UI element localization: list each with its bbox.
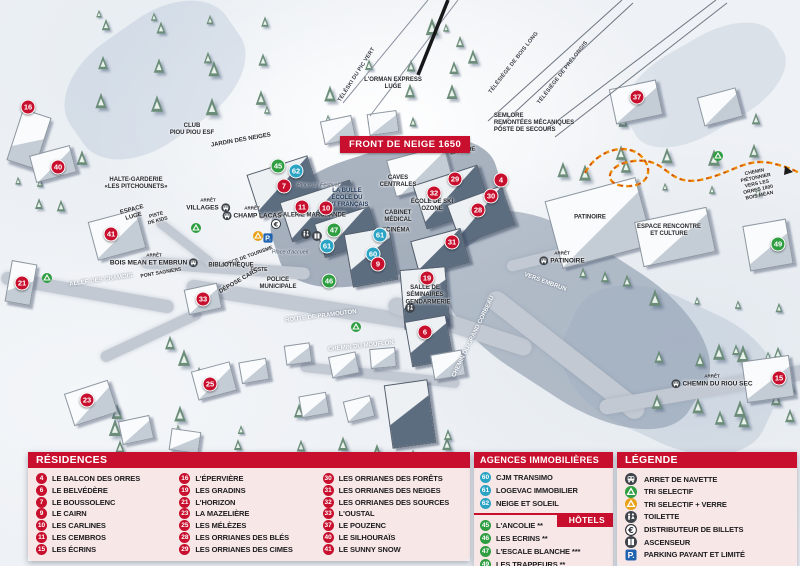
bus-stop-name: PATINOIRE: [550, 257, 584, 264]
map-marker-16: 16: [21, 100, 36, 115]
residence-number: 9: [36, 508, 47, 519]
tree: [785, 409, 795, 423]
agences-header: AGENCES IMMOBILIÈRES: [474, 452, 613, 468]
agence-item: 60CJM TRANSIMO: [480, 472, 608, 483]
map-label: CLUB PIOU PIOU ESF: [170, 123, 214, 137]
tree: [206, 98, 219, 115]
map-marker-31: 31: [445, 235, 460, 250]
tree: [709, 185, 715, 194]
map-marker-25: 25: [203, 377, 218, 392]
bus-stop-name: CHAMP LACAS: [234, 212, 282, 219]
tree: [234, 439, 242, 450]
residence-label: LE CAIRN: [52, 509, 87, 518]
recycle-green-icon: [625, 486, 637, 498]
map-label: CINÉMA: [386, 227, 410, 234]
hotel-number: 49: [480, 559, 491, 566]
residence-label: LES ORRIANES DES CIMES: [195, 545, 292, 554]
tree: [616, 145, 627, 160]
lift-icon: [312, 231, 322, 241]
residences-list: 4LE BALCON DES ORRES6LE BELVÉDÈRE7LE BOU…: [28, 468, 470, 561]
tree: [297, 440, 306, 452]
residence-item: 31LES ORRIANES DES NEIGES: [323, 485, 466, 496]
tree: [695, 353, 705, 367]
map-label: ÉCOLE DE SKI OZONE: [411, 199, 453, 213]
legende-label: TRI SELECTIF: [644, 487, 693, 496]
recycle-yellow-icon: [253, 231, 263, 241]
map-label: GALERIE MARCHANDE: [278, 212, 346, 219]
map-marker-41: 41: [104, 227, 119, 242]
recycle-green-icon: [713, 151, 723, 161]
residence-label: L'ÉPERVIÈRE: [195, 474, 243, 483]
legende-label: ASCENSEUR: [644, 538, 690, 547]
map-marker-61: 61: [320, 239, 335, 254]
bus-icon: [223, 211, 232, 220]
residence-label: LES ORRIANES DES FORÊTS: [339, 474, 443, 483]
tree: [443, 23, 449, 31]
map-label: ESPACE RENCONTRE ET CULTURE: [637, 224, 701, 238]
tree: [409, 117, 416, 127]
residence-item: 40LE SILHOURAÏS: [323, 532, 466, 543]
tree: [77, 150, 88, 165]
tree: [264, 105, 270, 113]
map-marker-47: 47: [327, 223, 342, 238]
recycle-yellow-icon: [625, 498, 637, 510]
tree: [735, 300, 741, 309]
residence-label: LES ORRIANES DES BLÉS: [195, 533, 289, 542]
bus-icon: [539, 256, 548, 265]
residence-item: 10LES CARLINES: [36, 520, 179, 531]
residences-panel: RÉSIDENCES 4LE BALCON DES ORRES6LE BELVÉ…: [28, 452, 470, 561]
bus-stop-name: CHEMIN DU RIOU SEC: [682, 380, 752, 387]
map-marker-7: 7: [277, 179, 292, 194]
tree: [102, 19, 110, 30]
building: [742, 219, 793, 272]
tree: [95, 93, 106, 109]
agences-panel: AGENCES IMMOBILIÈRES 60CJM TRANSIMO61LOG…: [474, 452, 613, 566]
legende-panel: LÉGENDE ARRET DE NAVETTETRI SELECTIFTRI …: [617, 452, 797, 566]
tree: [15, 177, 21, 185]
tree: [178, 349, 190, 366]
map-label: POLICE MUNICIPALE: [260, 277, 297, 291]
residence-label: LES ÉCRINS: [52, 545, 96, 554]
map-label: TÉLÉSIÈGE DE PRÉLONGIS: [536, 40, 589, 106]
tree: [468, 49, 478, 63]
tree: [338, 436, 348, 450]
legende-item: P.PARKING PAYANT ET LIMITÉ: [625, 549, 791, 561]
bus-icon: [189, 258, 198, 267]
tree: [775, 303, 782, 313]
residence-item: 7LE BOUSSOLENC: [36, 497, 179, 508]
hotels-header: HÔTELS: [557, 513, 613, 527]
tree: [557, 162, 568, 177]
residence-item: 41LE SUNNY SNOW: [323, 544, 466, 555]
bus-stop-chemin-du-riou-sec: ARRÊTCHEMIN DU RIOU SEC: [671, 374, 752, 388]
map-marker-46: 46: [322, 274, 337, 289]
map-marker-23: 23: [80, 393, 95, 408]
tree: [57, 200, 66, 212]
residence-number: 6: [36, 485, 47, 496]
map-marker-10: 10: [319, 201, 334, 216]
building: [169, 428, 202, 454]
hotel-label: L'ANCOLIE **: [496, 521, 543, 530]
tree: [98, 56, 108, 70]
residence-item: 29LES ORRIANES DES CIMES: [179, 544, 322, 555]
bus-stop-row: CHEMIN DU RIOU SEC: [671, 379, 752, 388]
residence-number: 37: [323, 520, 334, 531]
parking-icon: P.: [625, 549, 637, 561]
map-label: HALTE-GARDERIE «LES PITCHOUNETS»: [104, 177, 167, 191]
legende-item: TRI SELECTIF + VERRE: [625, 498, 791, 510]
map-label: VERS EMBRUN: [523, 272, 567, 294]
building: [238, 358, 269, 385]
tree: [623, 274, 632, 286]
residence-label: LE POUZENC: [339, 521, 386, 530]
legende-item: TRI SELECTIF: [625, 486, 791, 498]
tree: [447, 84, 458, 99]
map-label: BIBLIOTHÈQUE: [208, 262, 253, 269]
residence-item: 37LE POUZENC: [323, 520, 466, 531]
map-marker-11: 11: [295, 200, 310, 215]
residence-label: LES GRADINS: [195, 486, 245, 495]
bus-stop-patinoire: ARRÊTPATINOIRE: [539, 251, 584, 265]
map-label: PATINOIRE: [574, 214, 606, 221]
wc-icon: [405, 303, 415, 313]
hotel-item: 46LES ECRINS **: [480, 533, 608, 544]
hotel-number: 47: [480, 546, 491, 557]
residences-header: RÉSIDENCES: [28, 452, 470, 468]
agences-list: 60CJM TRANSIMO61LOGEVAC IMMOBILIER62NEIG…: [480, 472, 608, 509]
agence-number: 60: [480, 472, 491, 483]
legende-label: TOILETTE: [644, 512, 679, 521]
tree: [715, 410, 725, 424]
legende-label: PARKING PAYANT ET LIMITÉ: [644, 550, 745, 559]
tree: [258, 53, 267, 66]
residence-label: LE BALCON DES ORRES: [52, 474, 140, 483]
bus-stop-name: VILLAGES: [186, 204, 219, 211]
residence-label: LA MAZELIÈRE: [195, 509, 249, 518]
tree: [652, 394, 663, 409]
residence-item: 23LA MAZELIÈRE: [179, 508, 322, 519]
map-label: CAVES CENTRALES: [380, 175, 417, 189]
tree: [238, 425, 245, 434]
map-marker-49: 49: [771, 237, 786, 252]
tree: [449, 61, 458, 74]
residence-number: 21: [179, 497, 190, 508]
bus-icon: [625, 473, 637, 485]
residence-label: LE SILHOURAÏS: [339, 533, 396, 542]
residence-label: L'OUSTAL: [339, 509, 375, 518]
residence-number: 40: [323, 532, 334, 543]
bus-stop-row: PATINOIRE: [539, 256, 584, 265]
residence-item: 9LE CAIRN: [36, 508, 179, 519]
residences-column-2: 16L'ÉPERVIÈRE19LES GRADINS21L'HORIZON23L…: [179, 473, 322, 555]
building: [343, 395, 375, 423]
map-marker-6: 6: [418, 325, 433, 340]
agence-item: 61LOGEVAC IMMOBILIER: [480, 485, 608, 496]
legende-item: €DISTRIBUTEUR DE BILLETS: [625, 524, 791, 536]
wc-icon: [301, 229, 311, 239]
residence-number: 10: [36, 520, 47, 531]
residence-number: 28: [179, 532, 190, 543]
bus-stop-row: BOIS MEAN ET EMBRUN: [110, 258, 198, 267]
residence-item: 19LES GRADINS: [179, 485, 322, 496]
map-marker-28: 28: [471, 203, 486, 218]
map-label: Place du Festival: [297, 183, 339, 190]
residence-number: 11: [36, 532, 47, 543]
residence-number: 15: [36, 544, 47, 555]
bus-stop-name: BOIS MEAN ET EMBRUN: [110, 259, 187, 266]
map-label: SEMLORE REMONTÉES MÉCANIQUES POSTE DE SE…: [494, 113, 574, 135]
map-marker-61: 61: [373, 228, 388, 243]
tree: [749, 144, 759, 158]
svg-text:€: €: [273, 220, 279, 228]
legende-header: LÉGENDE: [617, 452, 797, 468]
legende-item: ARRET DE NAVETTE: [625, 473, 791, 485]
legende-item: ASCENSEUR: [625, 536, 791, 548]
tree: [157, 21, 166, 33]
tree: [256, 90, 267, 105]
tree: [713, 343, 725, 360]
tree: [738, 412, 749, 427]
building: [298, 392, 329, 419]
euro-icon: €: [271, 219, 281, 229]
residence-label: LE SUNNY SNOW: [339, 545, 401, 554]
map-label: Place d'accueil: [272, 250, 309, 257]
map-marker-21: 21: [15, 276, 30, 291]
map-label: TÉLÉSIÈGE DE BOIS LONG: [488, 31, 540, 96]
tree: [621, 158, 631, 172]
tree: [662, 183, 668, 191]
agence-number: 61: [480, 485, 491, 496]
recycle-green-icon: [191, 223, 201, 233]
residences-column-3: 30LES ORRIANES DES FORÊTS31LES ORRIANES …: [323, 473, 466, 555]
residence-number: 29: [179, 544, 190, 555]
tree: [601, 271, 609, 282]
map-label: ESPACE LUGE: [119, 204, 146, 224]
residence-item: 25LES MÉLÈZES: [179, 520, 322, 531]
residence-number: 4: [36, 473, 47, 484]
parking-icon: P.: [263, 233, 273, 243]
wc-icon: [625, 511, 637, 523]
residence-item: 33L'OUSTAL: [323, 508, 466, 519]
agence-item: 62NEIGE ET SOLEIL: [480, 498, 608, 509]
residences-column-1: 4LE BALCON DES ORRES6LE BELVÉDÈRE7LE BOU…: [36, 473, 179, 555]
tree: [207, 15, 214, 25]
agence-label: CJM TRANSIMO: [496, 473, 553, 482]
bus-stop-champ-lacas: ARRÊTCHAMP LACAS: [223, 206, 282, 220]
hotel-item: 49LES TRAPPEURS **: [480, 559, 608, 566]
map-label: CHEMIN PIÉTONNIER VERS LES ORRES 1800 BO…: [733, 165, 781, 203]
map-marker-29: 29: [448, 172, 463, 187]
residence-item: 28LES ORRIANES DES BLÉS: [179, 532, 322, 543]
map-label: CABINET MÉDICAL: [384, 210, 411, 224]
residence-number: 30: [323, 473, 334, 484]
residence-item: 11LES CEMBROS: [36, 532, 179, 543]
hotel-label: LES TRAPPEURS **: [496, 560, 565, 566]
tree: [579, 164, 591, 180]
map-marker-30: 30: [484, 189, 499, 204]
building: [369, 347, 397, 369]
building: [118, 415, 154, 445]
map-label: TÉLÉSKI DU PIC VERT: [337, 47, 377, 104]
legende-list: ARRET DE NAVETTETRI SELECTIFTRI SELECTIF…: [617, 468, 797, 566]
residence-label: LES CEMBROS: [52, 533, 106, 542]
tree: [174, 406, 186, 422]
tree: [407, 60, 416, 72]
map-marker-33: 33: [196, 292, 211, 307]
residence-item: 21L'HORIZON: [179, 497, 322, 508]
agences-body: 60CJM TRANSIMO61LOGEVAC IMMOBILIER62NEIG…: [474, 468, 613, 566]
residence-item: 6LE BELVÉDÈRE: [36, 485, 179, 496]
residence-item: 4LE BALCON DES ORRES: [36, 473, 179, 484]
tree: [579, 267, 587, 277]
residence-number: 32: [323, 497, 334, 508]
svg-text:P.: P.: [265, 234, 271, 243]
residence-number: 19: [179, 485, 190, 496]
legende-label: TRI SELECTIF + VERRE: [644, 500, 727, 509]
building: [697, 87, 743, 126]
tree: [456, 36, 464, 47]
hotel-number: 45: [480, 520, 491, 531]
map-marker-4: 4: [494, 173, 509, 188]
tree: [654, 350, 663, 363]
residence-item: 32LES ORRIANES DES SOURCES: [323, 497, 466, 508]
residence-number: 23: [179, 508, 190, 519]
map-label: SALLE DE SÉMINAIRES: [406, 285, 443, 299]
tree: [151, 95, 163, 112]
residence-item: 16L'ÉPERVIÈRE: [179, 473, 322, 484]
residence-number: 7: [36, 497, 47, 508]
front-de-neige-banner: FRONT DE NEIGE 1650: [340, 136, 470, 153]
recycle-green-icon: [351, 322, 361, 332]
map-label: L'ORMAN EXPRESS LUGE: [364, 77, 422, 91]
residence-label: LES ORRIANES DES SOURCES: [339, 498, 450, 507]
tree: [692, 398, 703, 414]
legende-item: TOILETTE: [625, 511, 791, 523]
map-marker-45: 45: [271, 159, 286, 174]
hotels-divider: HÔTELS: [474, 513, 613, 518]
tree: [324, 86, 336, 102]
tree: [649, 289, 661, 306]
map-marker-32: 32: [427, 186, 442, 201]
map-label: ALLÉE DES CHAMOIS: [69, 273, 133, 289]
residence-number: 33: [323, 508, 334, 519]
residence-label: LES ORRIANES DES NEIGES: [339, 486, 441, 495]
residence-number: 31: [323, 485, 334, 496]
map-marker-9: 9: [371, 257, 386, 272]
recycle-green-icon: [42, 273, 52, 283]
residence-label: LE BOUSSOLENC: [52, 498, 115, 507]
bus-icon: [671, 379, 680, 388]
residence-item: 15LES ÉCRINS: [36, 544, 179, 555]
agence-number: 62: [480, 498, 491, 509]
residence-label: LES MÉLÈZES: [195, 521, 246, 530]
map-marker-40: 40: [51, 160, 66, 175]
hotel-item: 47L'ESCALE BLANCHE ***: [480, 546, 608, 557]
tree: [444, 429, 452, 440]
svg-text:€: €: [627, 525, 633, 534]
legende-label: ARRET DE NAVETTE: [644, 475, 717, 484]
residence-label: LES CARLINES: [52, 521, 106, 530]
residence-number: 25: [179, 520, 190, 531]
euro-icon: €: [625, 524, 637, 536]
map-marker-15: 15: [772, 371, 787, 386]
tree: [694, 297, 700, 305]
tree: [165, 336, 175, 350]
tree: [426, 18, 439, 35]
residence-label: L'HORIZON: [195, 498, 235, 507]
building: [367, 110, 400, 136]
map-marker-37: 37: [630, 90, 645, 105]
legende-label: DISTRIBUTEUR DE BILLETS: [644, 525, 743, 534]
agence-label: NEIGE ET SOLEIL: [496, 499, 559, 508]
hotel-label: L'ESCALE BLANCHE ***: [496, 547, 580, 556]
residence-item: 30LES ORRIANES DES FORÊTS: [323, 473, 466, 484]
tree: [752, 113, 760, 125]
lift-icon: [625, 536, 637, 548]
ski-resort-map: CLUB PIOU PIOU ESFJARDIN DES NEIGESHALTE…: [0, 0, 800, 566]
tree: [208, 61, 219, 76]
building: [284, 342, 313, 365]
bus-stop-bois-mean-et-embrun: ARRÊTBOIS MEAN ET EMBRUN: [110, 253, 198, 267]
residence-number: 16: [179, 473, 190, 484]
tree: [261, 16, 269, 26]
residence-number: 41: [323, 544, 334, 555]
building: [384, 379, 436, 449]
hotel-number: 46: [480, 533, 491, 544]
hotel-label: LES ECRINS **: [496, 534, 548, 543]
tree: [151, 12, 157, 21]
agence-label: LOGEVAC IMMOBILIER: [496, 486, 578, 495]
tree: [154, 58, 164, 72]
svg-text:P.: P.: [628, 550, 635, 560]
residence-label: LE BELVÉDÈRE: [52, 486, 108, 495]
tree: [661, 148, 672, 164]
map-marker-62: 62: [289, 164, 304, 179]
map-marker-19: 19: [420, 271, 435, 286]
map-label: JARDIN DES NEIGES: [210, 132, 271, 150]
tree: [35, 198, 43, 209]
tree: [96, 10, 102, 18]
